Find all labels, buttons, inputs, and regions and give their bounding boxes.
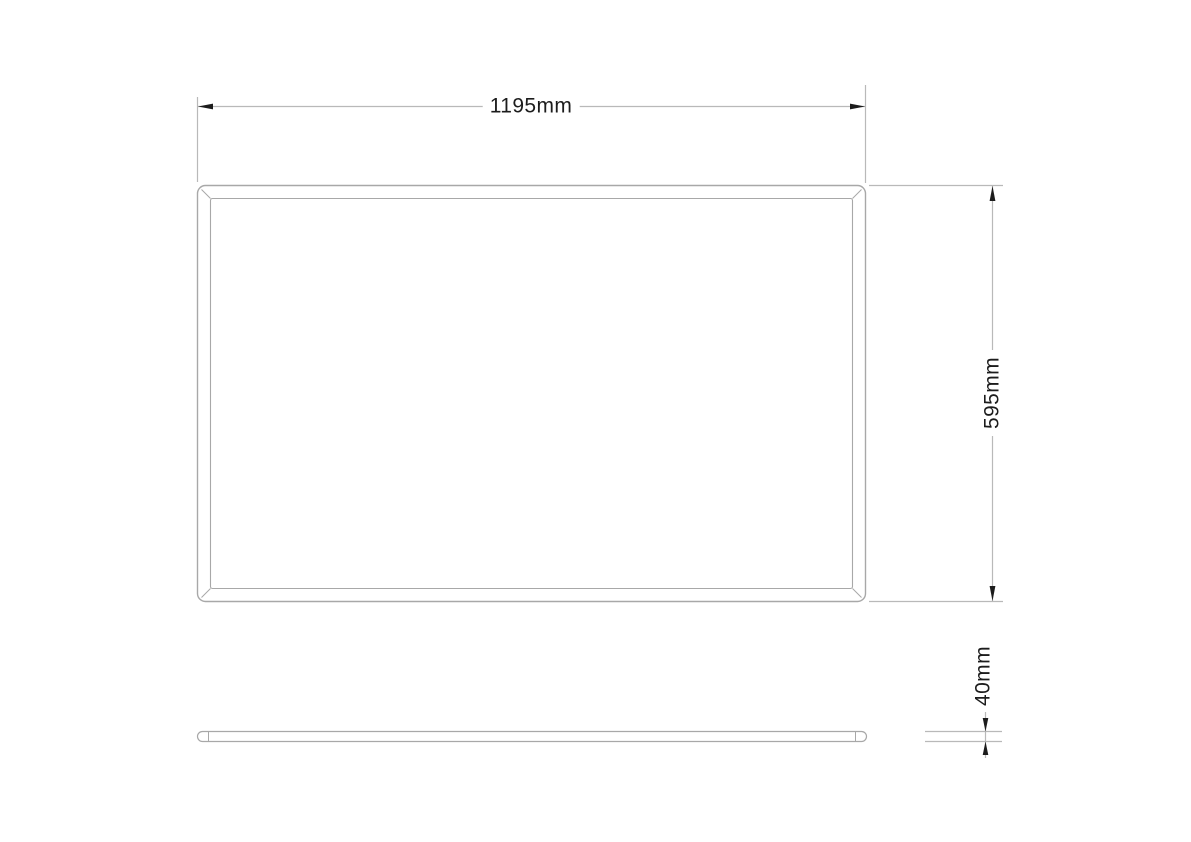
drawing-linework: [0, 0, 1191, 842]
width-arrow-right: [850, 104, 865, 110]
corner-chamfer-top-right: [853, 190, 862, 199]
height-arrow-top: [990, 186, 996, 201]
depth-dimension-label: 40mm: [970, 639, 995, 713]
panel-inner-frame-line: [211, 199, 853, 589]
corner-chamfer-top-left: [202, 190, 211, 199]
corner-chamfer-bottom-right: [853, 589, 862, 598]
depth-dimension: [925, 712, 1002, 758]
panel-outer-outline: [198, 186, 866, 602]
height-dimension-label: 595mm: [979, 350, 1004, 436]
panel-side-profile: [198, 732, 867, 742]
side-view: [198, 732, 867, 742]
width-arrow-left: [198, 104, 213, 110]
depth-arrow-top: [983, 718, 989, 732]
width-dimension-label: 1195mm: [483, 93, 580, 118]
height-arrow-bottom: [990, 586, 996, 601]
depth-arrow-bottom: [983, 742, 989, 756]
front-view: [198, 186, 866, 602]
dimension-drawing: 1195mm 595mm 40mm: [0, 0, 1191, 842]
corner-chamfer-bottom-left: [202, 589, 211, 598]
